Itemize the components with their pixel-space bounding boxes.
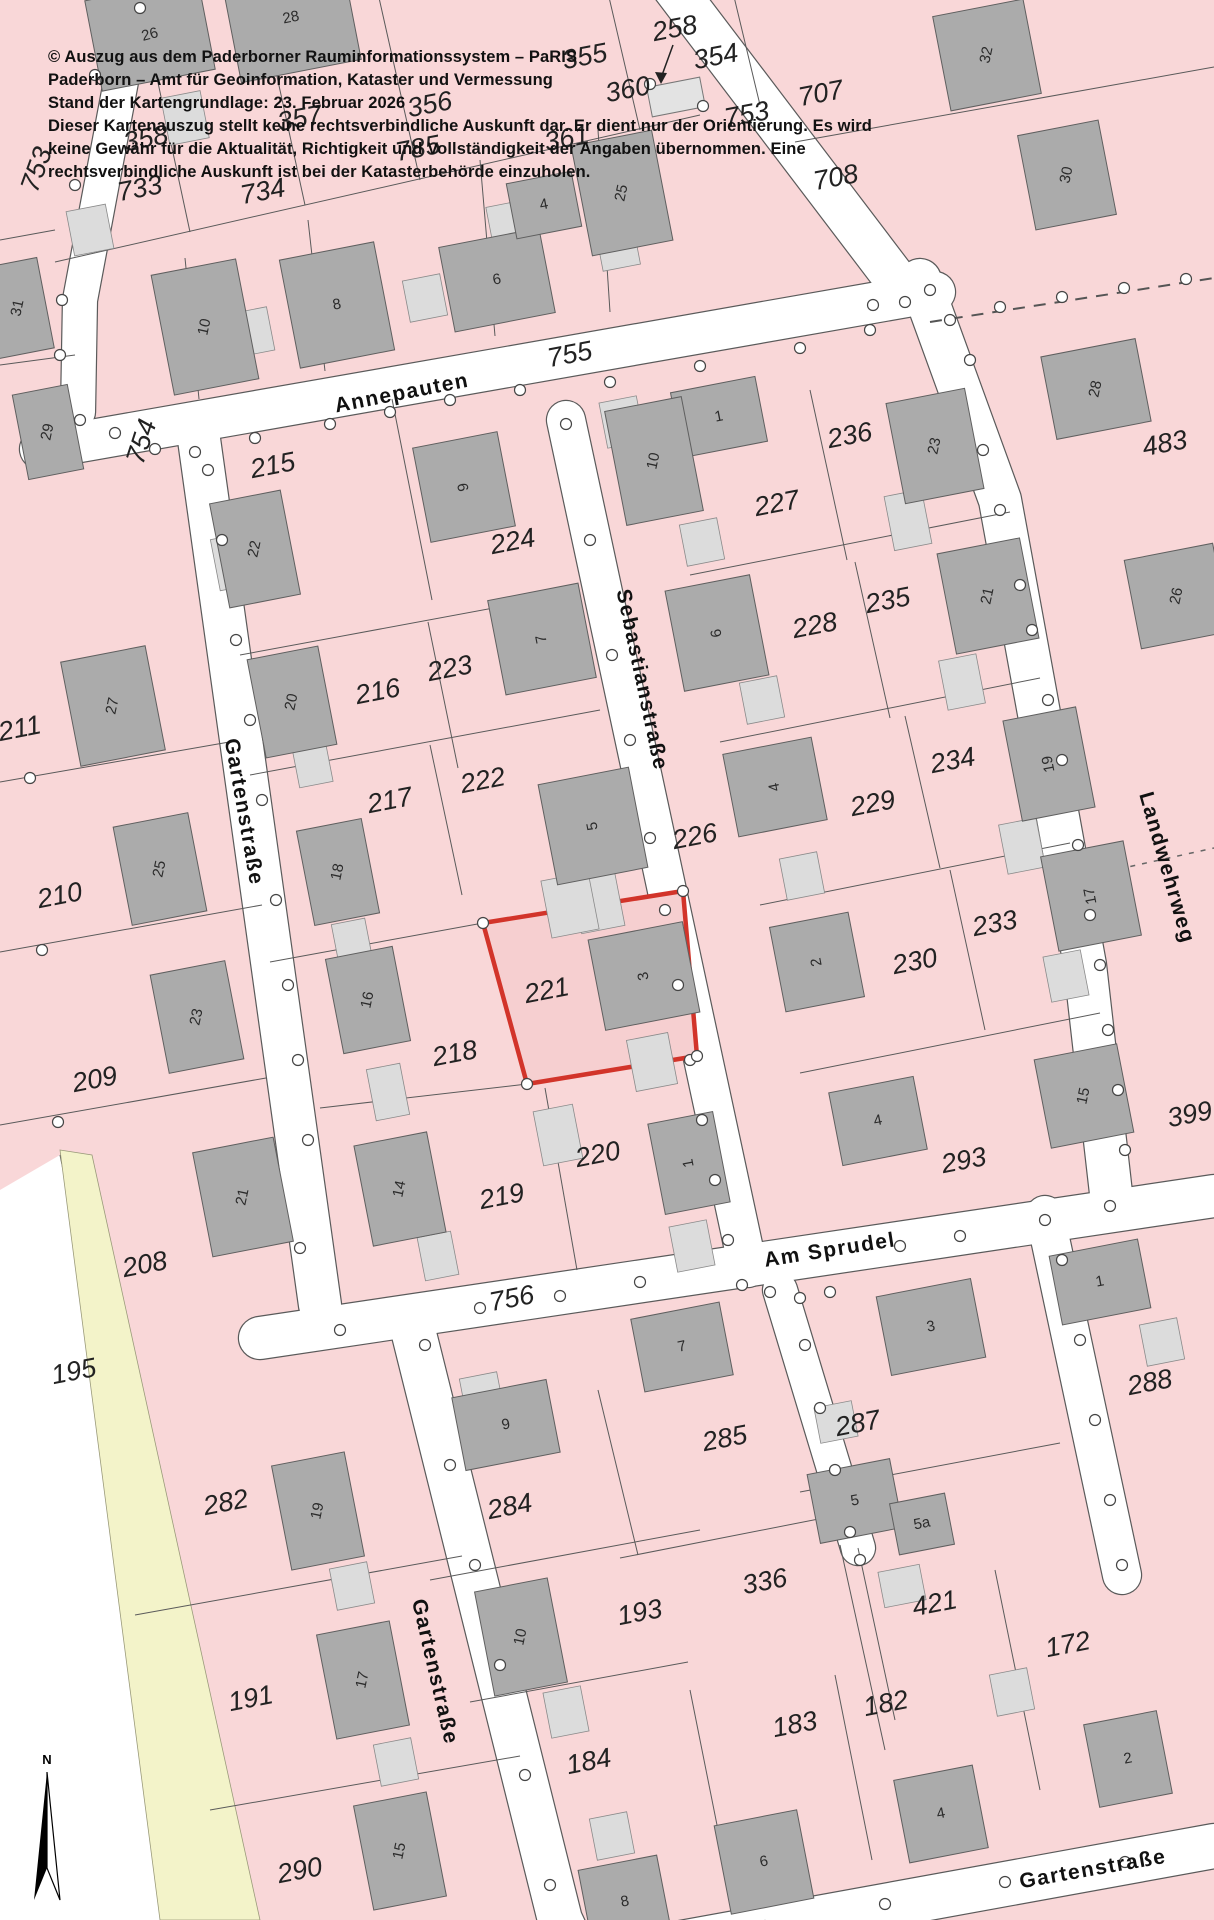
building-number-42: 19 [307,1501,327,1521]
boundary-point-34 [1120,1145,1131,1156]
building-number-19: 14 [389,1179,409,1199]
building-number-32: 19 [1039,754,1059,774]
boundary-point-36 [217,535,228,546]
building-number-13: 23 [186,1007,206,1027]
boundary-point-27 [1043,695,1054,706]
building-number-15: 22 [244,539,264,559]
building-number-18: 16 [357,990,377,1010]
boundary-point-91 [1057,292,1068,303]
boundary-point-22 [965,355,976,366]
outbuilding-16 [739,676,784,724]
building-number-43: 17 [352,1670,372,1690]
boundary-point-62 [955,1231,966,1242]
outbuilding-17 [779,852,824,900]
boundary-point-9 [250,433,261,444]
boundary-point-97 [53,1117,64,1128]
boundary-point-31 [1095,960,1106,971]
outbuilding-24 [373,1738,418,1786]
outbuilding-29 [989,1668,1034,1716]
boundary-point-74 [845,1527,856,1538]
boundary-point-52 [710,1175,721,1186]
north-label: N [42,1752,51,1767]
building-number-14: 21 [232,1187,252,1207]
boundary-point-13 [515,385,526,396]
outbuilding-2 [402,274,447,322]
boundary-point-30 [1085,910,1096,921]
boundary-point-88 [692,1051,703,1062]
boundary-point-72 [815,1403,826,1414]
boundary-point-38 [245,715,256,726]
building-number-44: 15 [389,1841,409,1861]
cadastral-map: 3583573563553542583603617857337347077087… [0,0,1214,1920]
boundary-point-14 [561,419,572,430]
boundary-point-90 [995,302,1006,313]
map-canvas: 3583573563553542583603617857337347077087… [0,0,1214,1920]
boundary-point-51 [697,1115,708,1126]
boundary-point-15 [605,377,616,388]
building-number-30: 23 [924,436,944,456]
building-number-7: 32 [976,45,996,65]
boundary-point-49 [673,980,684,991]
boundary-point-98 [295,1243,306,1254]
building-number-9: 31 [7,298,27,318]
building-number-6: 25 [611,183,631,203]
boundary-point-53 [723,1235,734,1246]
boundary-point-21 [945,315,956,326]
building-number-33: 17 [1081,886,1101,906]
boundary-point-63 [1040,1215,1051,1226]
boundary-point-41 [283,980,294,991]
boundary-point-23 [978,445,989,456]
outbuilding-30 [1139,1318,1184,1366]
boundary-point-57 [825,1287,836,1298]
outbuilding-25 [543,1686,589,1738]
boundary-point-42 [293,1055,304,1066]
boundary-point-46 [625,735,636,746]
outbuilding-21 [1043,950,1089,1002]
boundary-point-101 [698,101,709,112]
boundary-point-75 [855,1555,866,1566]
boundary-point-76 [1057,1255,1068,1266]
boundary-point-5 [75,415,86,426]
boundary-point-37 [231,635,242,646]
boundary-point-77 [1075,1335,1086,1346]
authority-line: Paderborn – Amt für Geoinformation, Kata… [48,71,553,90]
boundary-point-25 [1015,580,1026,591]
boundary-point-69 [520,1770,531,1781]
boundary-point-95 [25,773,36,784]
boundary-point-93 [1181,274,1192,285]
boundary-point-24 [995,505,1006,516]
boundary-point-19 [900,297,911,308]
boundary-point-92 [1119,283,1130,294]
boundary-point-89 [522,1079,533,1090]
boundary-point-26 [1027,625,1038,636]
building-number-17: 18 [327,862,347,882]
boundary-point-56 [795,1293,806,1304]
boundary-point-6 [110,428,121,439]
building-number-1: 28 [281,8,301,28]
map-date-line: Stand der Kartengrundlage: 23. Februar 2… [48,94,405,113]
boundary-point-96 [37,945,48,956]
disclaimer-line-1: Dieser Kartenauszug stellt keine rechtsv… [48,117,872,136]
boundary-point-87 [678,886,689,897]
building-number-11: 27 [102,696,122,716]
boundary-point-8 [190,447,201,458]
boundary-point-79 [1105,1495,1116,1506]
copyright-line: © Auszug aus dem Paderborner Rauminforma… [48,48,577,67]
disclaimer-line-2: keine Gewähr für die Aktualität, Richtig… [48,140,806,159]
outbuilding-15 [679,518,724,566]
building-number-12: 25 [149,859,169,879]
boundary-point-54 [737,1280,748,1291]
boundary-point-18 [865,325,876,336]
outbuilding-26 [589,1812,634,1860]
boundary-point-3 [57,295,68,306]
boundary-point-29 [1073,840,1084,851]
boundary-point-55 [765,1287,776,1298]
building-number-31: 21 [977,586,997,606]
boundary-point-32 [1103,1025,1114,1036]
boundary-point-58 [475,1303,486,1314]
boundary-point-84 [1000,1877,1011,1888]
boundary-point-94 [868,300,879,311]
boundary-point-33 [1113,1085,1124,1096]
building-number-26: 10 [643,451,663,471]
building-number-8: 30 [1056,165,1076,185]
building-number-10: 29 [37,422,57,442]
boundary-point-4 [55,350,66,361]
building-number-45: 10 [510,1627,530,1647]
boundary-point-0 [135,3,146,14]
boundary-point-83 [880,1899,891,1910]
boundary-point-71 [800,1340,811,1351]
boundary-point-47 [645,833,656,844]
boundary-point-99 [335,1325,346,1336]
boundary-point-39 [257,795,268,806]
boundary-point-86 [478,918,489,929]
boundary-point-10 [325,419,336,430]
building-number-16: 20 [281,692,301,712]
boundary-point-67 [470,1560,481,1571]
boundary-point-59 [555,1291,566,1302]
boundary-point-68 [495,1660,506,1671]
boundary-point-78 [1090,1415,1101,1426]
outbuilding-31 [669,1220,715,1272]
boundary-point-60 [635,1277,646,1288]
boundary-point-11 [385,407,396,418]
boundary-point-40 [271,895,282,906]
boundary-point-65 [420,1340,431,1351]
boundary-point-48 [660,905,671,916]
boundary-point-17 [795,343,806,354]
boundary-point-43 [303,1135,314,1146]
building-number-36: 15 [1073,1086,1093,1106]
boundary-point-20 [925,285,936,296]
outbuilding-5 [66,204,114,256]
boundary-point-66 [445,1460,456,1471]
disclaimer-line-3: rechtsverbindliche Auskunft ist bei der … [48,163,590,182]
boundary-point-70 [545,1880,556,1891]
boundary-point-44 [585,535,596,546]
outbuilding-23 [329,1562,374,1610]
boundary-point-35 [203,465,214,476]
boundary-point-16 [695,361,706,372]
boundary-point-64 [1105,1201,1116,1212]
building-number-2: 10 [194,317,214,337]
boundary-point-45 [607,650,618,661]
boundary-point-28 [1057,755,1068,766]
building-number-35: 26 [1166,586,1186,606]
boundary-point-80 [1117,1560,1128,1571]
boundary-point-73 [830,1465,841,1476]
building-number-34: 28 [1085,379,1105,399]
